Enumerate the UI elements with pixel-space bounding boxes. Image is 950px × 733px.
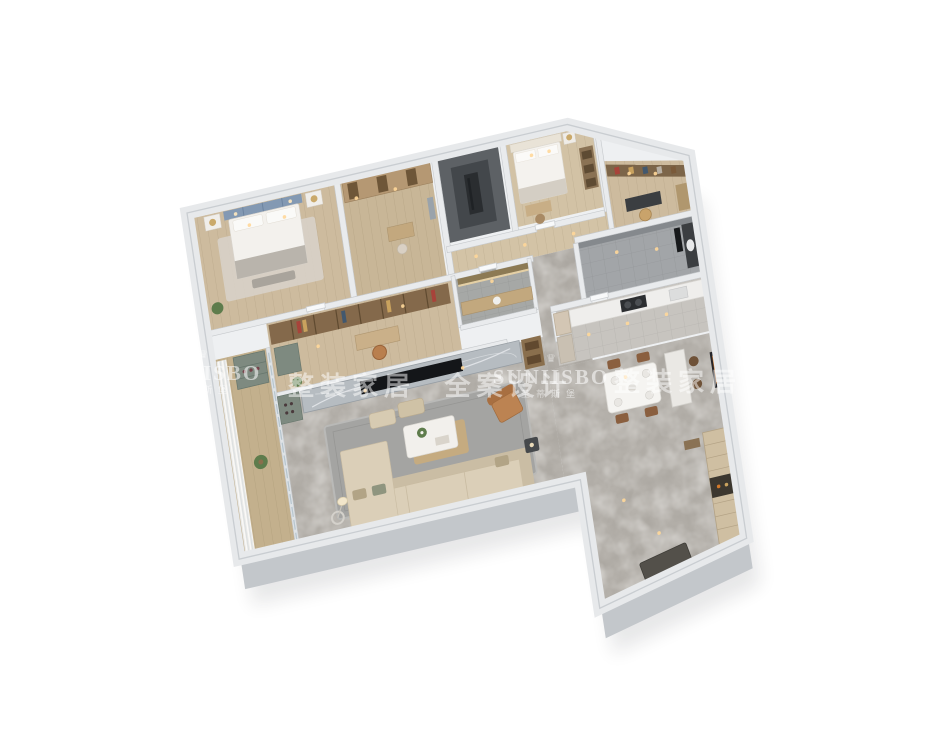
floorplan-3d-render: ♛ SUNIISBO 圣蒂斯堡 整装家居 全案设计 ♛ SUNIISBO 圣蒂斯… bbox=[0, 0, 950, 733]
room-utility-shaft bbox=[437, 146, 510, 243]
floorplan-svg bbox=[0, 0, 950, 733]
